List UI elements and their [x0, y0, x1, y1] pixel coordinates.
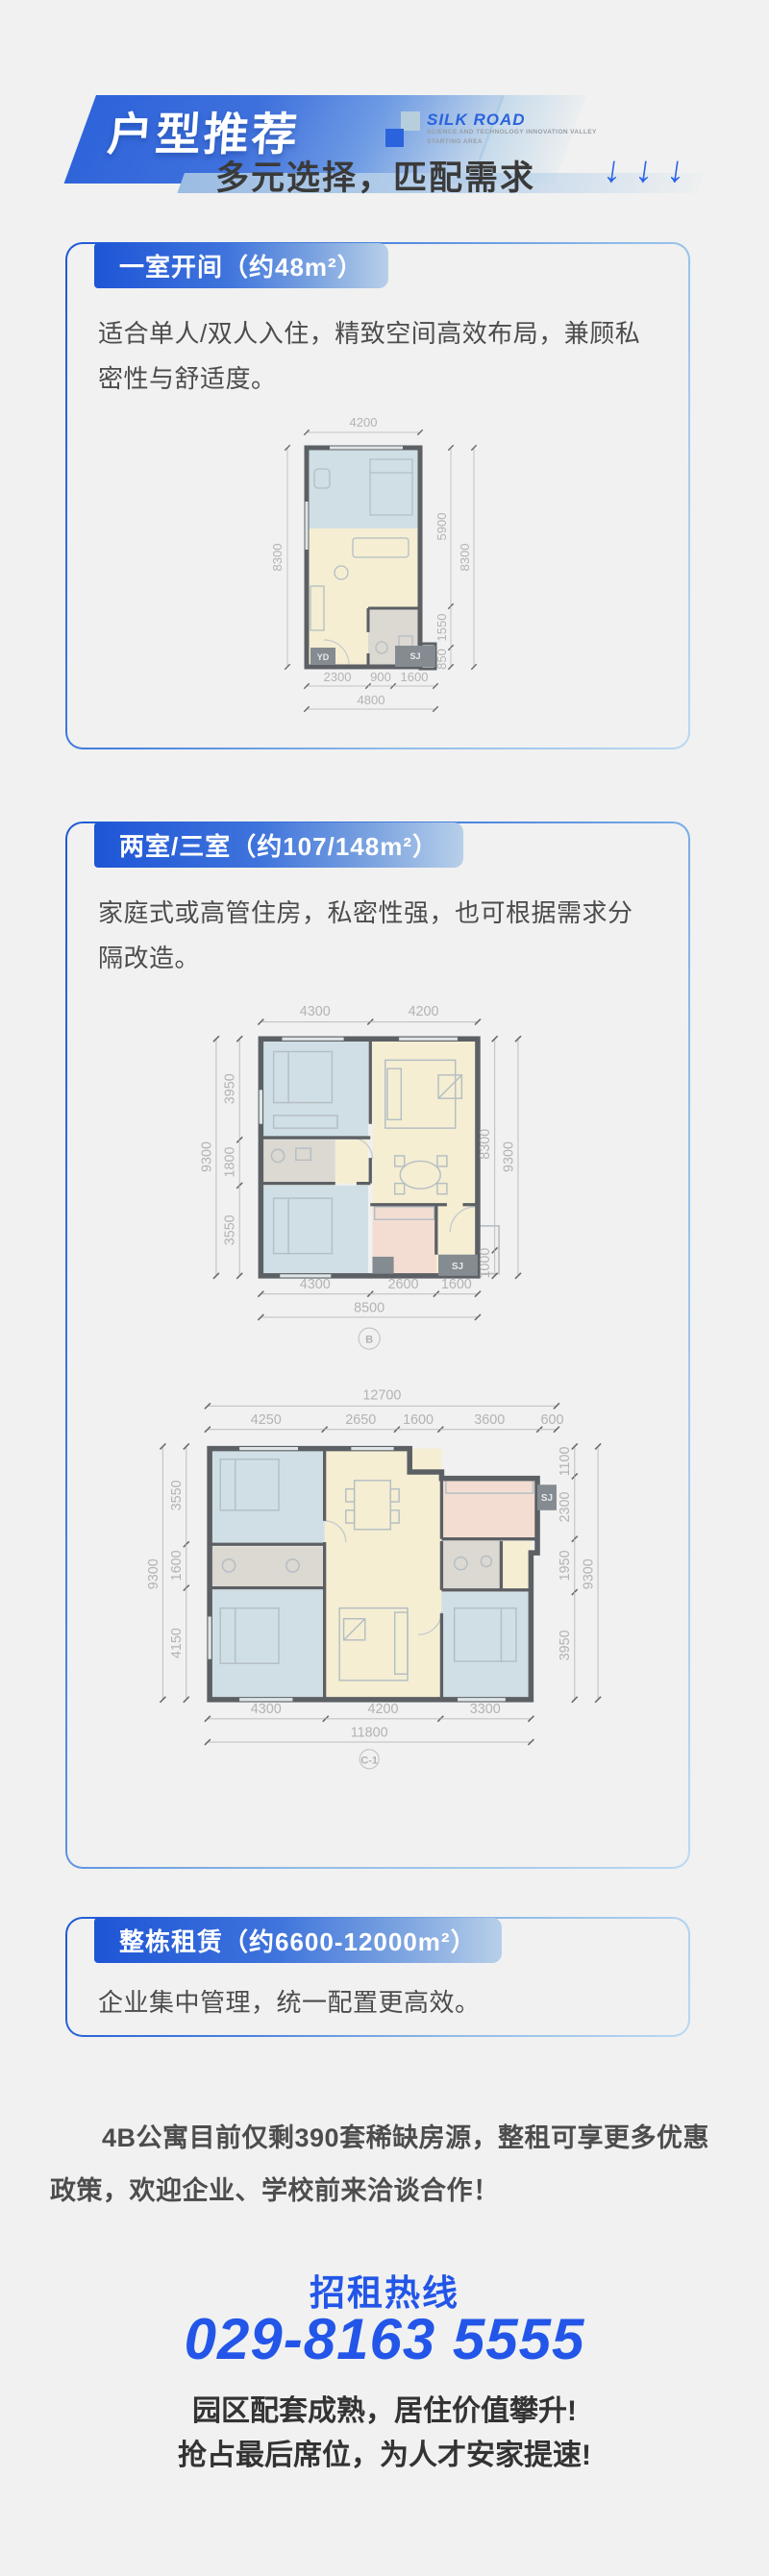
dim-label: 1100: [558, 1446, 573, 1476]
dim-label: 1600: [169, 1550, 185, 1581]
dim-label: 3300: [470, 1702, 501, 1717]
dim-label: 1600: [441, 1277, 472, 1292]
dim-label: 4250: [251, 1412, 282, 1428]
dim-label: 3600: [474, 1412, 505, 1428]
dim-label: 9300: [146, 1558, 161, 1589]
dim-label: 2650: [345, 1412, 376, 1428]
card-badge: 整栋租赁（约6600-12000m²）: [94, 1918, 502, 1963]
brand-logo: SILK ROAD SCIENCE AND TECHNOLOGY INNOVAT…: [383, 108, 597, 152]
dim-label: 8300: [478, 1128, 493, 1159]
rooms-group: [309, 450, 418, 667]
dim-label: 4200: [409, 1003, 439, 1018]
unit-card-studio: 一室开间（约48m²） 适合单人/双人入住，精致空间高效布局，兼顾私密性与舒适度…: [65, 242, 690, 749]
dim-label: 5900: [434, 512, 449, 540]
floorplan-two-room: SJ 4300 4200 3950 1800 3550 9300: [80, 996, 676, 1358]
card-badge: 一室开间（约48m²）: [94, 243, 388, 288]
room-tag: YD: [317, 652, 330, 662]
logo-square-light: [401, 111, 420, 131]
dim-label: 3550: [169, 1480, 185, 1510]
slogan-line-1: 园区配套成熟，居住价值攀升!: [0, 2387, 769, 2429]
dim-label: 4300: [300, 1277, 331, 1292]
logo-tagline-2: STARTING AREA: [427, 137, 597, 147]
hotline-number: 029-8163 5555: [0, 2306, 769, 2372]
unit-card-multiroom: 两室/三室（约107/148m²） 家庭式或高管住房，私密性强，也可根据需求分隔…: [65, 822, 690, 1869]
down-arrow-icon: ↓: [601, 152, 624, 188]
unit-card-whole-building: 整栋租赁（约6600-12000m²） 企业集中管理，统一配置更高效。: [65, 1917, 690, 2037]
dim-label: 9300: [501, 1141, 516, 1172]
dim-label: 3950: [223, 1073, 238, 1104]
dim-label: 9300: [199, 1141, 214, 1172]
room-tags-group: SJ: [537, 1484, 557, 1510]
dim-label: 11800: [351, 1725, 388, 1740]
floorplan-three-room: SJ 12700 4250 2650 1600 3600 600: [80, 1383, 676, 1771]
room-tag: SJ: [409, 651, 420, 661]
card-inner: 一室开间（约48m²） 适合单人/双人入住，精致空间高效布局，兼顾私密性与舒适度…: [67, 244, 688, 748]
dim-label: 4300: [251, 1702, 282, 1717]
header-subtitle: 多元选择，匹配需求: [215, 151, 535, 200]
dim-label: 8500: [354, 1300, 384, 1315]
availability-paragraph: 4B公寓目前仅剩390套稀缺房源，整租可享更多优惠政策，欢迎企业、学校前来洽谈合…: [50, 2112, 719, 2219]
room-tag: SJ: [452, 1262, 463, 1272]
dim-label: 600: [541, 1412, 564, 1428]
dim-label: 1950: [558, 1550, 573, 1581]
logo-square-dark: [385, 129, 404, 147]
scroll-down-arrows: ↓ ↓ ↓: [601, 152, 687, 188]
dim-label: 850: [434, 649, 449, 670]
dim-label: 8300: [270, 543, 285, 571]
dim-label: 12700: [362, 1387, 401, 1403]
plan-marker: B: [365, 1334, 373, 1345]
plan-marker: C-1: [360, 1754, 378, 1766]
dim-label: 2300: [324, 670, 352, 684]
logo-name: SILK ROAD: [427, 111, 597, 128]
logo-text: SILK ROAD SCIENCE AND TECHNOLOGY INNOVAT…: [427, 108, 597, 147]
dim-label: 1550: [434, 613, 449, 641]
dim-label: 1800: [223, 1146, 238, 1177]
dim-label: 4800: [358, 693, 385, 707]
dim-label: 8300: [458, 543, 472, 571]
room-tag: SJ: [541, 1492, 553, 1503]
dim-label: 4300: [300, 1003, 331, 1018]
dim-label: 2600: [388, 1277, 419, 1292]
dim-label: 9300: [582, 1558, 597, 1589]
dim-label: 1600: [401, 670, 429, 684]
card-badge: 两室/三室（约107/148m²）: [94, 822, 463, 868]
dim-label: 3950: [558, 1630, 573, 1660]
dim-label: 2300: [558, 1491, 573, 1522]
dim-label: 900: [370, 670, 391, 684]
dim-label: 4150: [169, 1628, 185, 1658]
card-inner: 两室/三室（约107/148m²） 家庭式或高管住房，私密性强，也可根据需求分隔…: [67, 823, 688, 1867]
card-inner: 整栋租赁（约6600-12000m²） 企业集中管理，统一配置更高效。: [67, 1919, 688, 2035]
dim-label: 4200: [350, 415, 378, 429]
floorplan-studio: YD SJ 4200 8300 5900 1550 850 8300: [128, 409, 628, 726]
logo-tagline-1: SCIENCE AND TECHNOLOGY INNOVATION VALLEY: [427, 128, 597, 137]
down-arrow-icon: ↓: [633, 152, 656, 188]
dim-label: 4200: [368, 1702, 399, 1717]
dim-label: 1000: [478, 1247, 493, 1278]
logo-mark-icon: [383, 108, 427, 152]
dim-label: 3550: [223, 1214, 238, 1245]
promo-page: 户型推荐 SILK ROAD SCIENCE AND TECHNOLOGY IN…: [0, 0, 769, 2576]
slogan-line-2: 抢占最后席位，为人才安家提速!: [0, 2431, 769, 2473]
dim-label: 1600: [403, 1412, 434, 1428]
